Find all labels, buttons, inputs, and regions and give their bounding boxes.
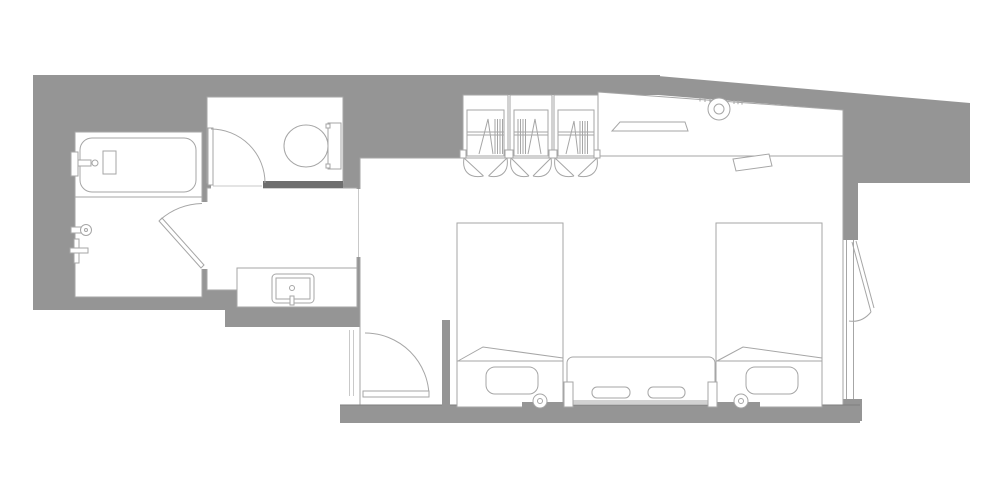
wall-closet-strip [463,75,660,95]
slippers-1 [592,387,630,398]
shower-arm [71,227,81,233]
bathtub: Bathtub [71,132,202,197]
entry-door-leaf [363,391,429,397]
toilet-room-dark-wall [263,181,343,188]
bedside-console: Bedside console with slippers [564,357,717,407]
bed-1-pillow [486,367,538,394]
reading-light-1-center [538,399,543,404]
wall-bottom [340,405,860,423]
toilet-tank-corner-top [326,124,330,128]
bathroom-door-opening [200,202,209,269]
reading-light-2-center [739,399,744,404]
floor-plan: Hotel guest room floor plan Bathroom wit… [0,0,1000,500]
tub-drain [92,160,98,166]
closet-jamb-2 [505,150,513,158]
twin-bed-2: Twin bed 2 [716,223,822,407]
shower-mixer [70,248,88,253]
casement-swing [849,312,871,321]
wall-shelf [612,122,688,131]
vanity: Vanity counter with sink [237,268,357,307]
ceiling-light-center [714,104,724,114]
sink-faucet [290,296,294,305]
shower-head-center [85,229,88,232]
closet-3-box [554,95,598,158]
twin-bed-1: Twin bed 1 [457,223,563,407]
wall-window-upper [842,108,858,240]
closet-jamb-1 [460,150,466,158]
console-post-right [708,382,717,407]
closet-2-box [510,95,552,158]
console-post-left [564,382,573,407]
entry-partition-stub [442,320,450,407]
window: Window with casement pane [847,240,875,399]
tub-spout [78,160,91,166]
toilet-tank-corner-bottom [326,164,330,168]
closet-jamb-4 [594,150,600,158]
slippers-2 [648,387,685,398]
toilet-tank [328,123,341,169]
toilet-door-leaf [208,128,213,185]
sink-drain [290,286,295,291]
toilet-bowl [284,125,328,167]
wall-top-band [360,75,468,158]
casement-pane [852,241,874,312]
tub-faucet-plate [71,152,78,176]
bed-2-pillow [746,367,798,394]
tub-seat [103,151,116,174]
toilet: Toilet [284,123,341,169]
vanity-corridor: Vanity counter with sink [237,268,357,307]
closet-1-box [463,95,508,158]
console-top [567,357,715,403]
closet-jamb-3 [549,150,557,158]
